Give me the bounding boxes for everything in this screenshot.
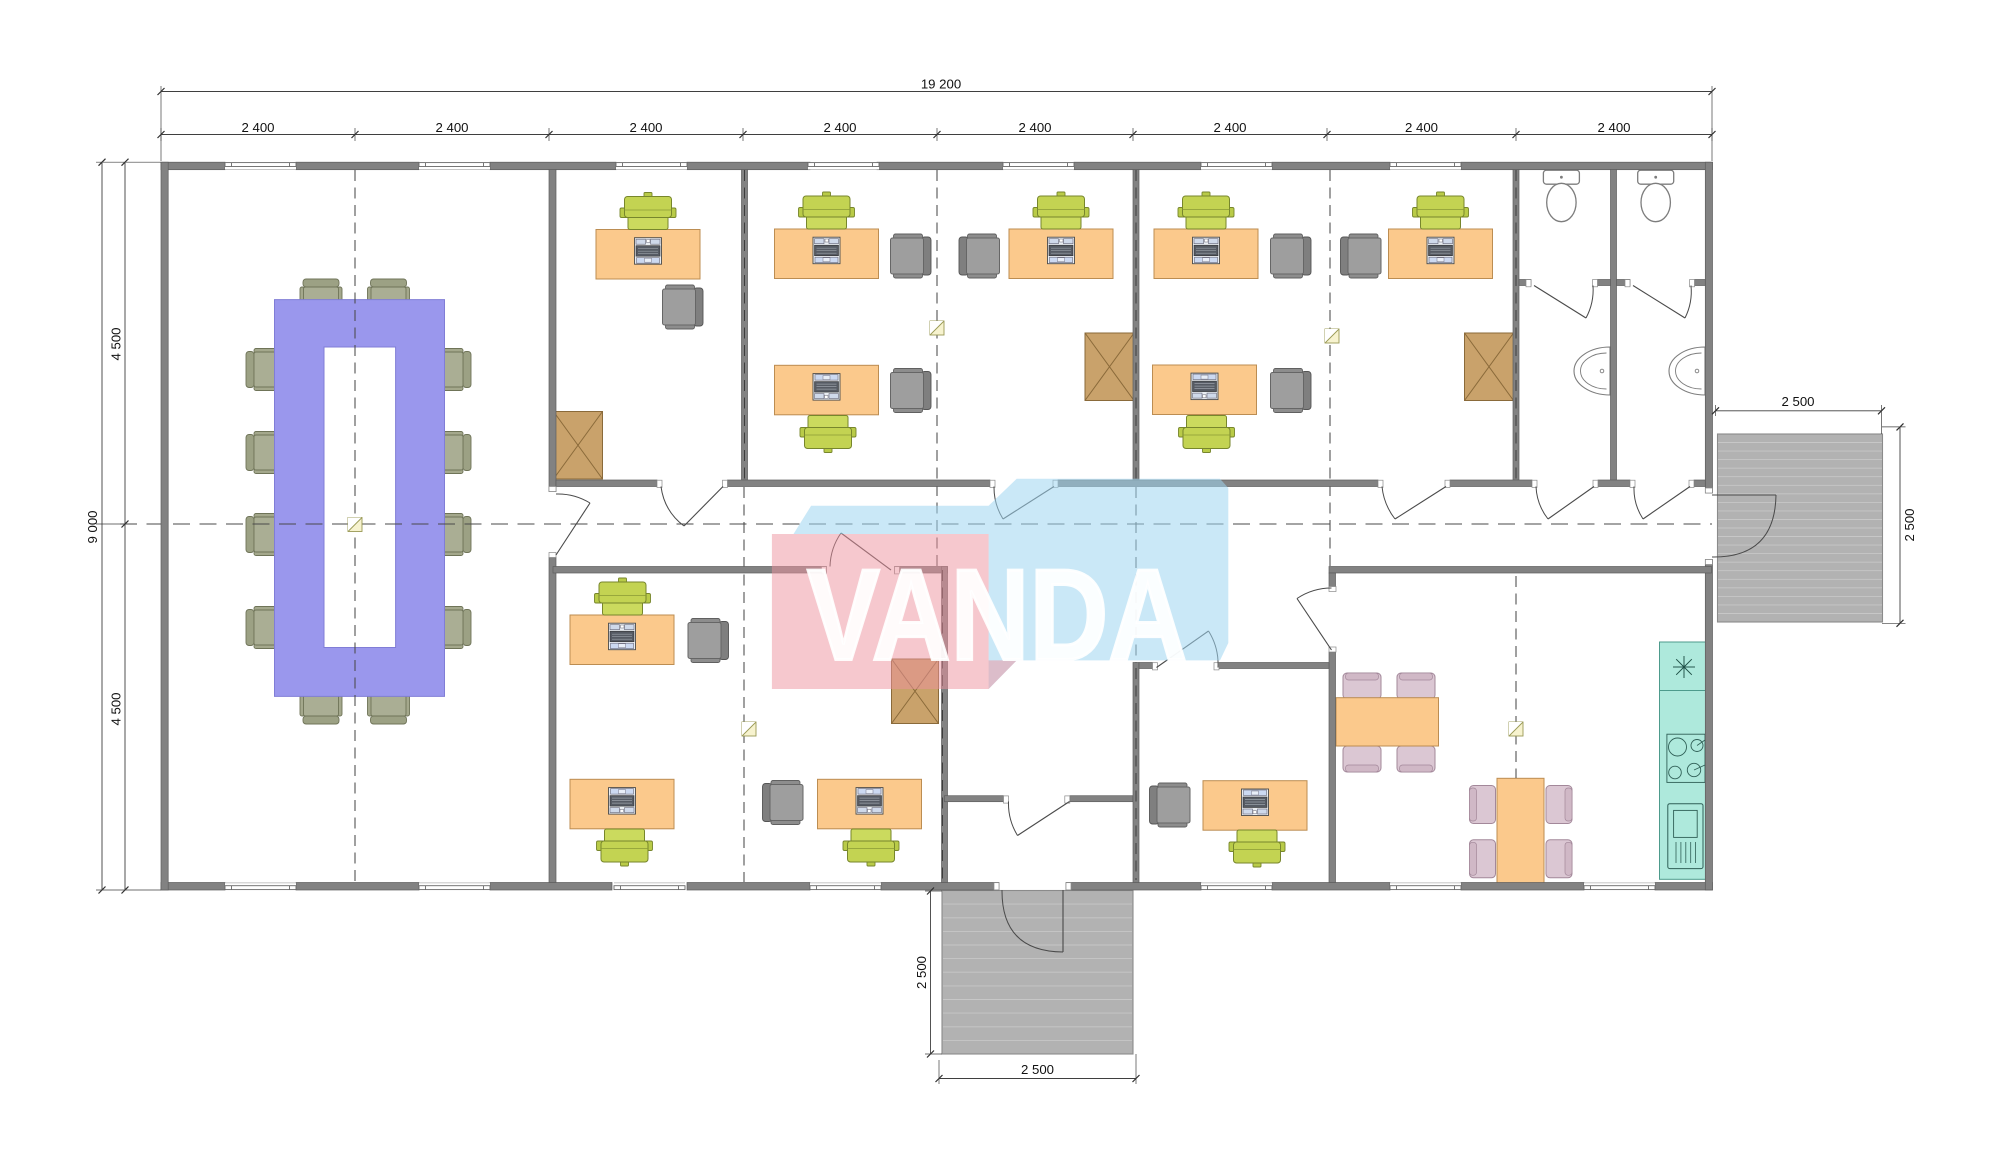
svg-text:2 400: 2 400	[823, 120, 856, 135]
svg-text:2 400: 2 400	[241, 120, 274, 135]
svg-text:9 000: 9 000	[85, 510, 100, 543]
svg-text:2 400: 2 400	[1018, 120, 1051, 135]
svg-text:2 500: 2 500	[1902, 508, 1917, 541]
svg-text:4 500: 4 500	[109, 327, 124, 360]
svg-text:19 200: 19 200	[921, 77, 961, 92]
svg-text:VANDA: VANDA	[807, 543, 1187, 688]
svg-text:2 400: 2 400	[1597, 120, 1630, 135]
svg-text:2 500: 2 500	[914, 956, 929, 989]
svg-text:2 400: 2 400	[1405, 120, 1438, 135]
svg-text:2 400: 2 400	[1213, 120, 1246, 135]
svg-text:2 500: 2 500	[1781, 394, 1814, 409]
svg-text:2 400: 2 400	[629, 120, 662, 135]
svg-text:2 400: 2 400	[435, 120, 468, 135]
svg-text:2 500: 2 500	[1021, 1062, 1054, 1077]
svg-text:4 500: 4 500	[109, 692, 124, 725]
